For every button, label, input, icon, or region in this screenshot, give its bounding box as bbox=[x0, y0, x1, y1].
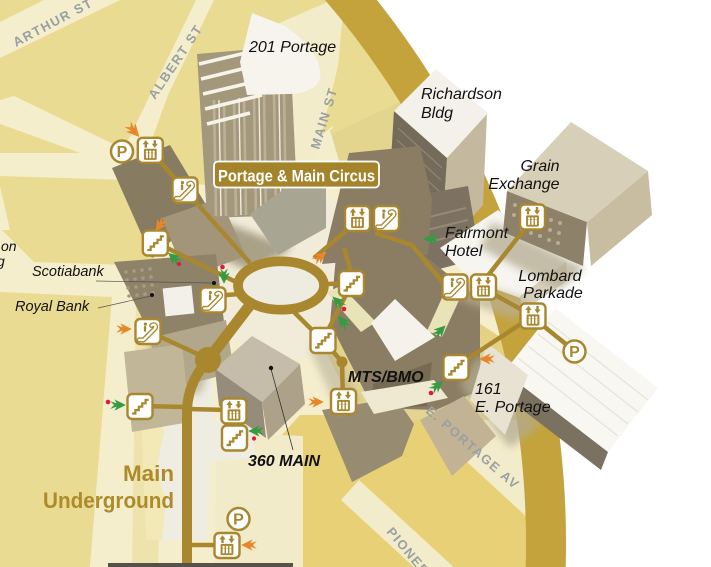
svg-text:MTS/BMO: MTS/BMO bbox=[348, 369, 424, 386]
svg-text:g: g bbox=[0, 253, 5, 269]
svg-text:360 MAIN: 360 MAIN bbox=[248, 453, 320, 470]
svg-text:Scotiabank: Scotiabank bbox=[32, 264, 104, 280]
svg-text:Underground: Underground bbox=[43, 488, 174, 513]
svg-text:Richardson: Richardson bbox=[421, 86, 502, 103]
svg-text:Fairmont: Fairmont bbox=[445, 225, 509, 242]
svg-text:Portage & Main Circus: Portage & Main Circus bbox=[218, 167, 375, 186]
svg-text:Main: Main bbox=[123, 461, 174, 486]
svg-text:201 Portage: 201 Portage bbox=[248, 39, 336, 56]
svg-text:Hotel: Hotel bbox=[445, 243, 483, 260]
svg-text:Royal Bank: Royal Bank bbox=[15, 299, 90, 315]
svg-text:Grain: Grain bbox=[520, 158, 559, 175]
svg-text:Parkade: Parkade bbox=[523, 285, 583, 302]
svg-text:Exchange: Exchange bbox=[488, 176, 559, 193]
svg-text:161: 161 bbox=[475, 381, 502, 398]
svg-text:on: on bbox=[1, 238, 17, 254]
svg-text:Lombard: Lombard bbox=[518, 268, 582, 285]
svg-text:E. Portage: E. Portage bbox=[475, 399, 551, 416]
svg-text:Bldg: Bldg bbox=[421, 105, 453, 122]
